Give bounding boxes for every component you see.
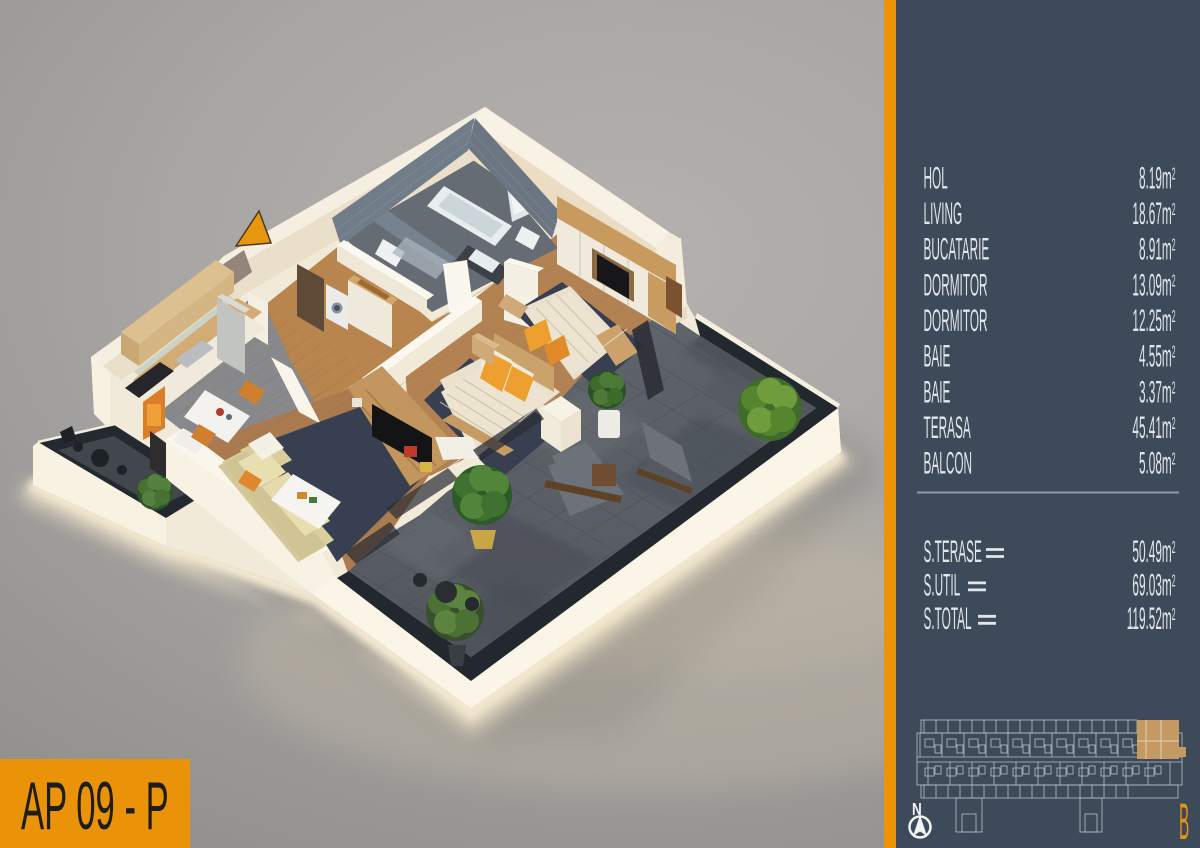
svg-text:8.19m2: 8.19m2 — [1139, 160, 1176, 196]
svg-text:LIVING: LIVING — [924, 196, 963, 232]
svg-text:45.41m2: 45.41m2 — [1132, 410, 1175, 446]
svg-text:S.TERASE: S.TERASE — [924, 534, 982, 570]
svg-text:BAIE: BAIE — [924, 375, 951, 411]
svg-text:BALCON: BALCON — [924, 446, 973, 482]
svg-text:B: B — [1179, 793, 1189, 848]
svg-text:TERASA: TERASA — [924, 410, 971, 446]
svg-text:S.TOTAL: S.TOTAL — [924, 601, 972, 637]
svg-text:119.52m2: 119.52m2 — [1127, 601, 1176, 637]
svg-text:12.25m2: 12.25m2 — [1132, 303, 1175, 339]
svg-text:4.55m2: 4.55m2 — [1139, 339, 1176, 375]
svg-text:BAIE: BAIE — [924, 339, 951, 375]
svg-text:BUCATARIE: BUCATARIE — [924, 232, 990, 268]
svg-text:69.03m2: 69.03m2 — [1132, 568, 1175, 604]
svg-text:DORMITOR: DORMITOR — [924, 303, 988, 339]
svg-text:18.67m2: 18.67m2 — [1132, 196, 1175, 232]
svg-text:DORMITOR: DORMITOR — [924, 267, 988, 303]
svg-text:50.49m2: 50.49m2 — [1132, 534, 1175, 570]
svg-text:5.08m2: 5.08m2 — [1139, 446, 1176, 482]
svg-text:HOL: HOL — [924, 160, 948, 196]
svg-text:3.37m2: 3.37m2 — [1139, 375, 1176, 411]
svg-text:13.09m2: 13.09m2 — [1132, 267, 1175, 303]
svg-text:8.91m2: 8.91m2 — [1139, 232, 1176, 268]
svg-text:N: N — [912, 800, 922, 819]
svg-text:S.UTIL: S.UTIL — [924, 568, 961, 604]
svg-text:AP 09 - P: AP 09 - P — [21, 769, 169, 845]
